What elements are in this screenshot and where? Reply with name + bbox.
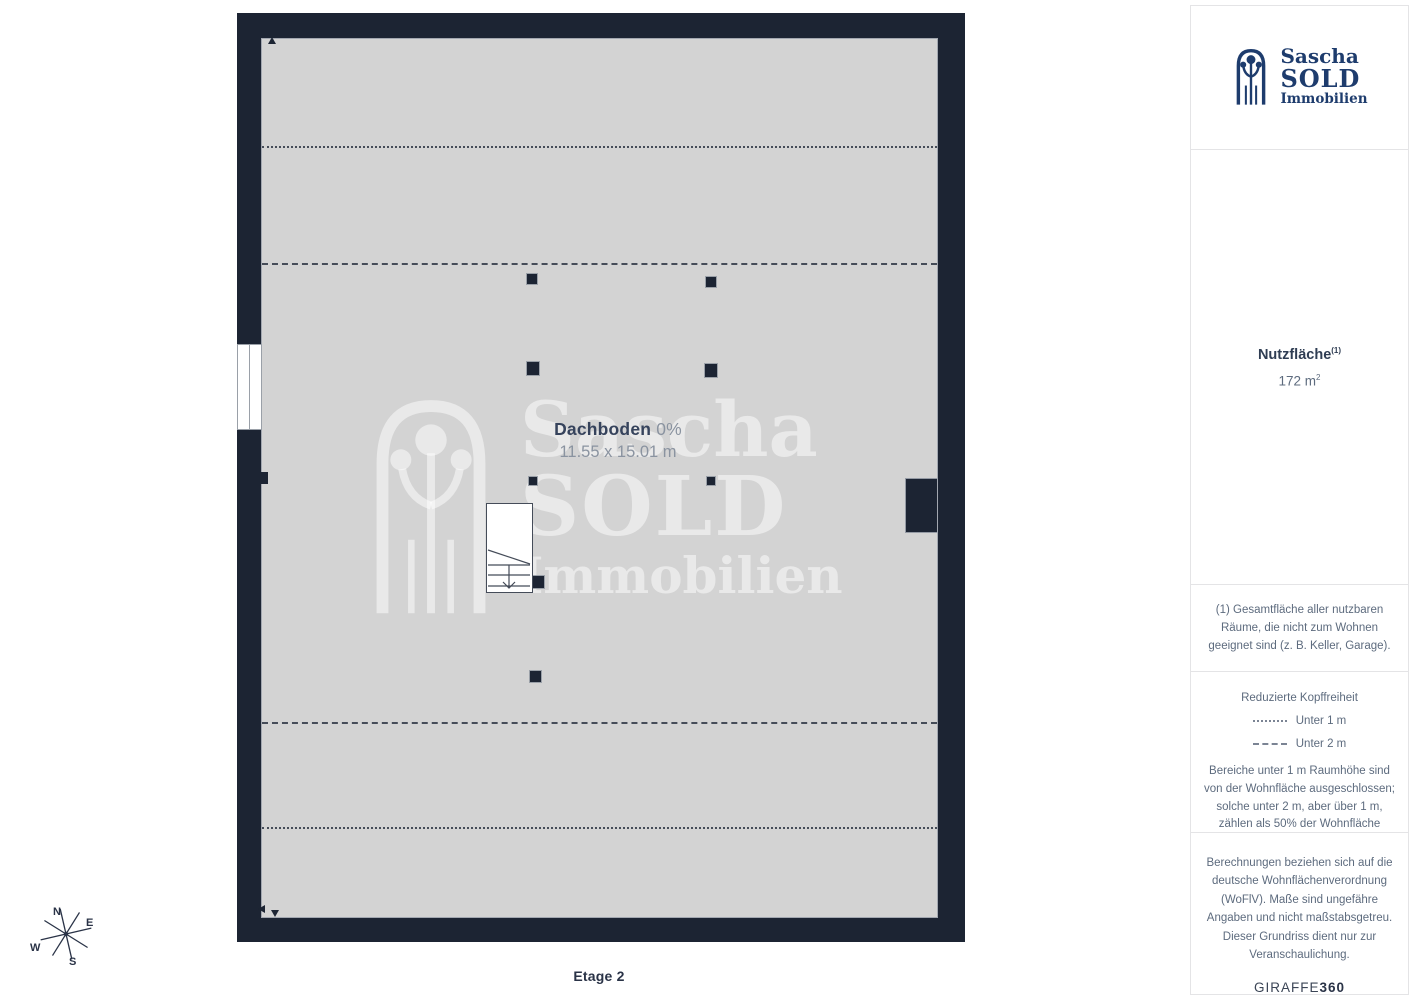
- column-post: [707, 477, 715, 485]
- dotted-line-sample-icon: [1253, 720, 1287, 722]
- headroom-line-under-1m-top: [262, 146, 937, 148]
- legend-item-under-1m: Unter 1 m: [1203, 715, 1396, 727]
- disclaimer-text: Berechnungen beziehen sich auf die deuts…: [1203, 854, 1396, 964]
- info-sidebar: Sascha SOLD Immobilien Nutzfläche(1) 172…: [1190, 5, 1409, 995]
- column-post: [527, 362, 539, 375]
- column-post: [527, 274, 537, 284]
- legend-item-label: Unter 2 m: [1296, 738, 1347, 750]
- headroom-line-under-2m-top: [262, 263, 937, 265]
- tree-logo-icon: [1231, 48, 1271, 106]
- column-post: [706, 277, 716, 287]
- room-label: Dachboden 0% 11.55 x 15.01 m: [468, 419, 768, 462]
- logo-line3: Immobilien: [1280, 91, 1367, 108]
- sidebar-logo-section: Sascha SOLD Immobilien: [1191, 6, 1408, 149]
- legend-item-under-2m: Unter 2 m: [1203, 738, 1396, 750]
- column-post: [529, 477, 537, 485]
- floor-label: Etage 2: [449, 968, 749, 984]
- footnote-text: (1) Gesamtfläche aller nutzbaren Räume, …: [1205, 601, 1394, 656]
- sidebar-disclaimer-section: Berechnungen beziehen sich auf die deuts…: [1191, 832, 1408, 994]
- giraffe360-logo: GIRAFFE360: [1203, 980, 1396, 995]
- headroom-line-under-2m-bottom: [262, 722, 937, 724]
- window-mullion: [249, 345, 250, 429]
- footnote-reference: (1): [1331, 346, 1341, 355]
- column-post: [530, 671, 541, 682]
- tick-arrow-down-icon: [271, 910, 279, 917]
- compass-north-label: N: [53, 906, 61, 918]
- attic-floor-area: [262, 39, 937, 917]
- headroom-line-under-1m-bottom: [262, 827, 937, 829]
- tick-arrow-up-icon: [268, 37, 276, 44]
- window: [237, 344, 262, 430]
- sidebar-area-section: Nutzfläche(1) 172 m2: [1191, 149, 1408, 585]
- tick-arrow-left-icon: [258, 905, 265, 913]
- room-percent: 0%: [656, 419, 682, 439]
- logo-line2: SOLD: [1280, 67, 1367, 91]
- legend-item-label: Unter 1 m: [1296, 715, 1347, 727]
- compass-rose-icon: N E W S: [26, 898, 106, 974]
- compass-east-label: E: [86, 917, 93, 929]
- company-logo: Sascha SOLD Immobilien: [1231, 46, 1367, 108]
- column-post: [705, 364, 717, 377]
- column-post: [533, 576, 544, 588]
- room-name: Dachboden: [554, 419, 651, 439]
- sidebar-footnote-section: (1) Gesamtfläche aller nutzbaren Räume, …: [1191, 584, 1408, 671]
- area-label: Nutzfläche(1): [1258, 346, 1341, 363]
- floorplan-page: Sascha SOLD Immobilien Dachboden 0% 11.5…: [0, 0, 1414, 1000]
- room-dimensions: 11.55 x 15.01 m: [468, 443, 768, 462]
- compass-south-label: S: [69, 956, 76, 968]
- compass-west-label: W: [30, 942, 41, 954]
- sidebar-legend-section: Reduzierte Kopffreiheit Unter 1 m Unter …: [1191, 671, 1408, 832]
- legend-title: Reduzierte Kopffreiheit: [1203, 692, 1396, 704]
- area-value: 172 m2: [1279, 373, 1321, 389]
- legend-note: Bereiche unter 1 m Raumhöhe sind von der…: [1203, 763, 1396, 834]
- wall-projection: [259, 472, 268, 484]
- dashed-line-sample-icon: [1253, 743, 1287, 745]
- chimney-block: [905, 478, 937, 533]
- staircase: [486, 503, 533, 593]
